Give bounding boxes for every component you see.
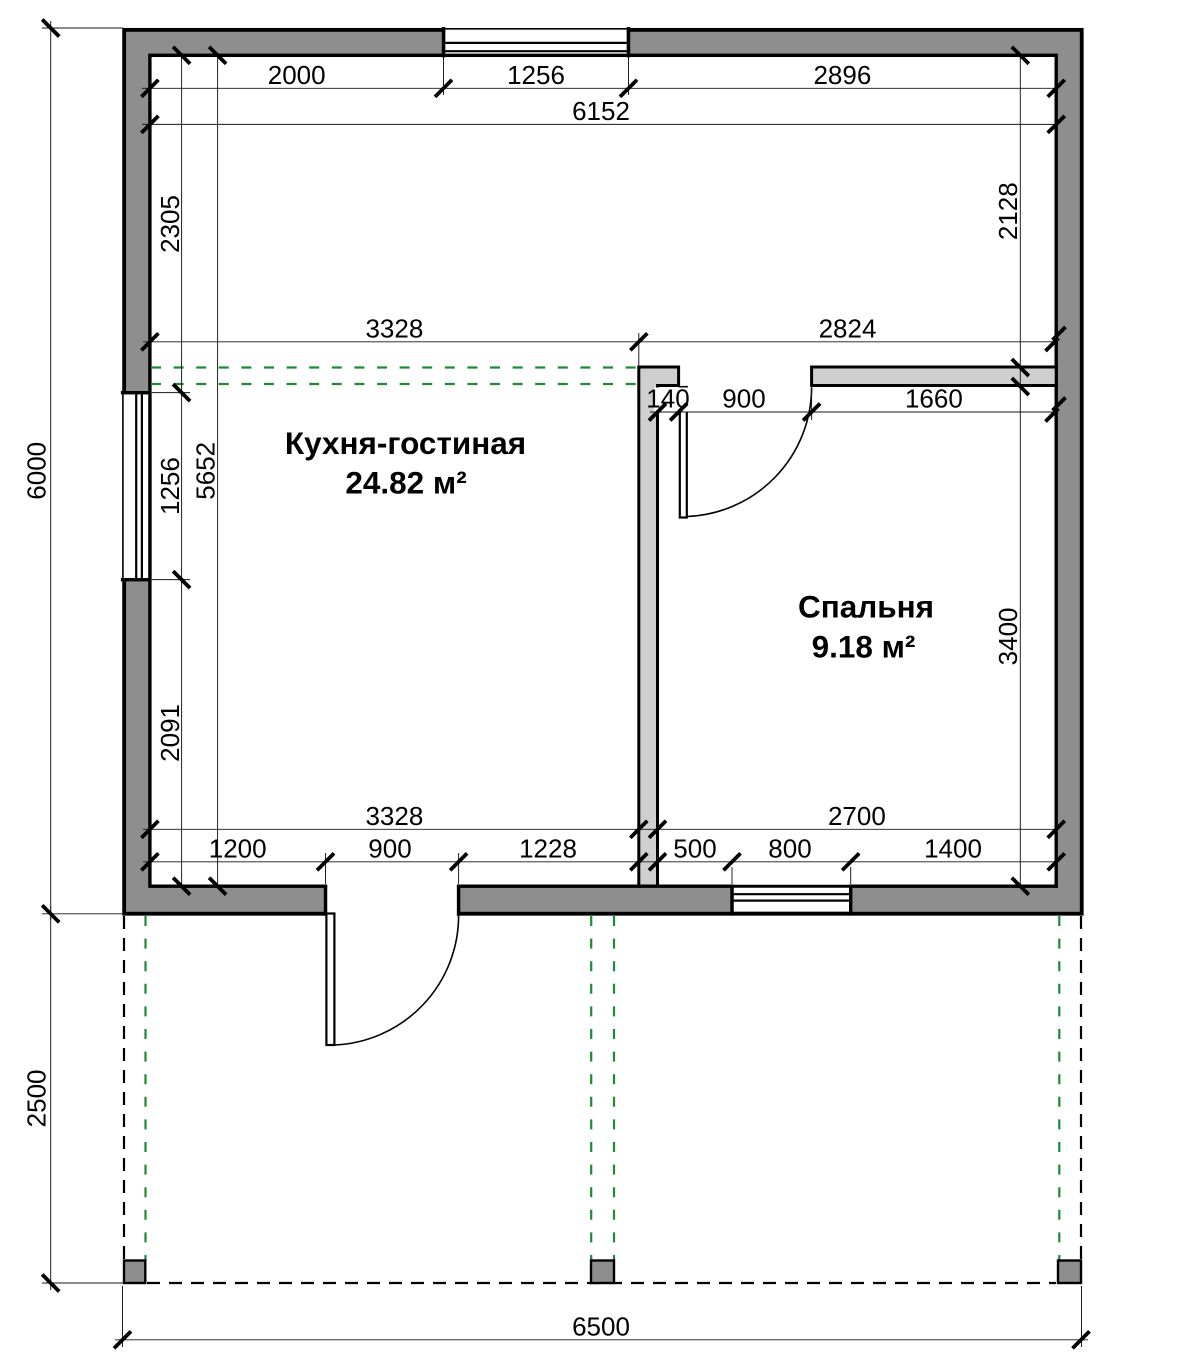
svg-text:2000: 2000 bbox=[268, 60, 326, 90]
svg-text:Спальня: Спальня bbox=[798, 589, 934, 625]
svg-text:1256: 1256 bbox=[155, 457, 185, 515]
svg-text:3328: 3328 bbox=[365, 801, 423, 831]
svg-text:1660: 1660 bbox=[905, 384, 963, 414]
svg-text:140: 140 bbox=[646, 384, 689, 414]
svg-text:2305: 2305 bbox=[155, 195, 185, 253]
svg-text:9.18 м²: 9.18 м² bbox=[812, 628, 916, 664]
svg-text:2091: 2091 bbox=[155, 704, 185, 762]
svg-text:2128: 2128 bbox=[993, 182, 1023, 240]
svg-text:6000: 6000 bbox=[22, 442, 52, 500]
svg-text:2824: 2824 bbox=[819, 313, 877, 343]
svg-text:6500: 6500 bbox=[572, 1311, 630, 1341]
svg-text:1228: 1228 bbox=[519, 833, 577, 863]
svg-text:3400: 3400 bbox=[993, 607, 1023, 665]
svg-text:1400: 1400 bbox=[924, 833, 982, 863]
svg-text:900: 900 bbox=[722, 384, 765, 414]
svg-text:5652: 5652 bbox=[191, 442, 221, 500]
svg-text:24.82 м²: 24.82 м² bbox=[345, 464, 466, 500]
svg-text:2896: 2896 bbox=[813, 60, 871, 90]
svg-text:900: 900 bbox=[368, 833, 411, 863]
svg-text:2700: 2700 bbox=[828, 801, 886, 831]
svg-text:2500: 2500 bbox=[22, 1069, 52, 1127]
svg-text:500: 500 bbox=[673, 833, 716, 863]
svg-text:Кухня-гостиная: Кухня-гостиная bbox=[285, 425, 526, 461]
svg-text:1256: 1256 bbox=[507, 60, 565, 90]
svg-text:800: 800 bbox=[768, 833, 811, 863]
svg-text:6152: 6152 bbox=[572, 96, 630, 126]
svg-text:3328: 3328 bbox=[365, 313, 423, 343]
